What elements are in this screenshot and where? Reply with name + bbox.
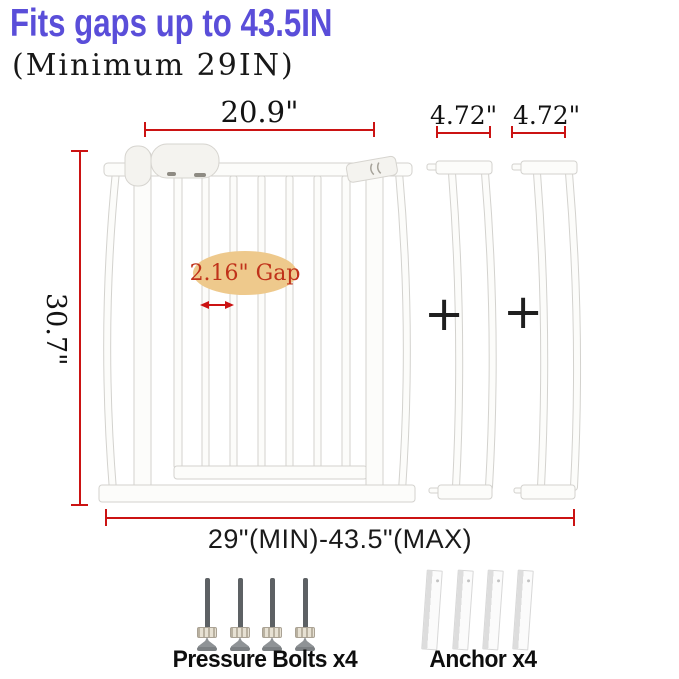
gate-handle: [151, 144, 219, 178]
gate-hinge-cover: [125, 146, 151, 186]
gate-door-bottom-rail: [174, 466, 367, 479]
extension2-width-label: 4.72": [513, 101, 579, 130]
gate-right-post: [366, 161, 383, 490]
anchors-label: Anchor x4: [407, 646, 559, 674]
plus-icon: +: [424, 290, 458, 338]
product-diagram: Fits gaps up to 43.5IN (Minimum 29IN): [0, 0, 679, 679]
gap-badge: 2.16" Gap: [193, 251, 297, 295]
pressure-bolt: [197, 578, 217, 651]
range-label: 29"(MIN)-43.5"(MAX): [130, 524, 550, 555]
gate-base-rail: [99, 485, 415, 502]
gate-left-post: [134, 152, 151, 490]
plus-icon: +: [503, 288, 537, 336]
top-width-label: 20.9": [145, 95, 374, 129]
gate-door-bars: [174, 176, 350, 468]
pressure-bolt: [295, 578, 315, 651]
gate-left-bow-bar: [107, 171, 116, 491]
extension1-width-label: 4.72": [430, 101, 496, 130]
gate-latch: [346, 156, 399, 183]
pressure-bolt: [262, 578, 282, 651]
top-width-line: [145, 129, 374, 131]
pressure-bolts-label: Pressure Bolts x4: [173, 646, 349, 674]
gap-arrow-icon: [200, 298, 234, 312]
pressure-bolt: [230, 578, 250, 651]
height-label: 30.7": [40, 283, 71, 375]
gate-right-bow-bar: [399, 172, 407, 491]
